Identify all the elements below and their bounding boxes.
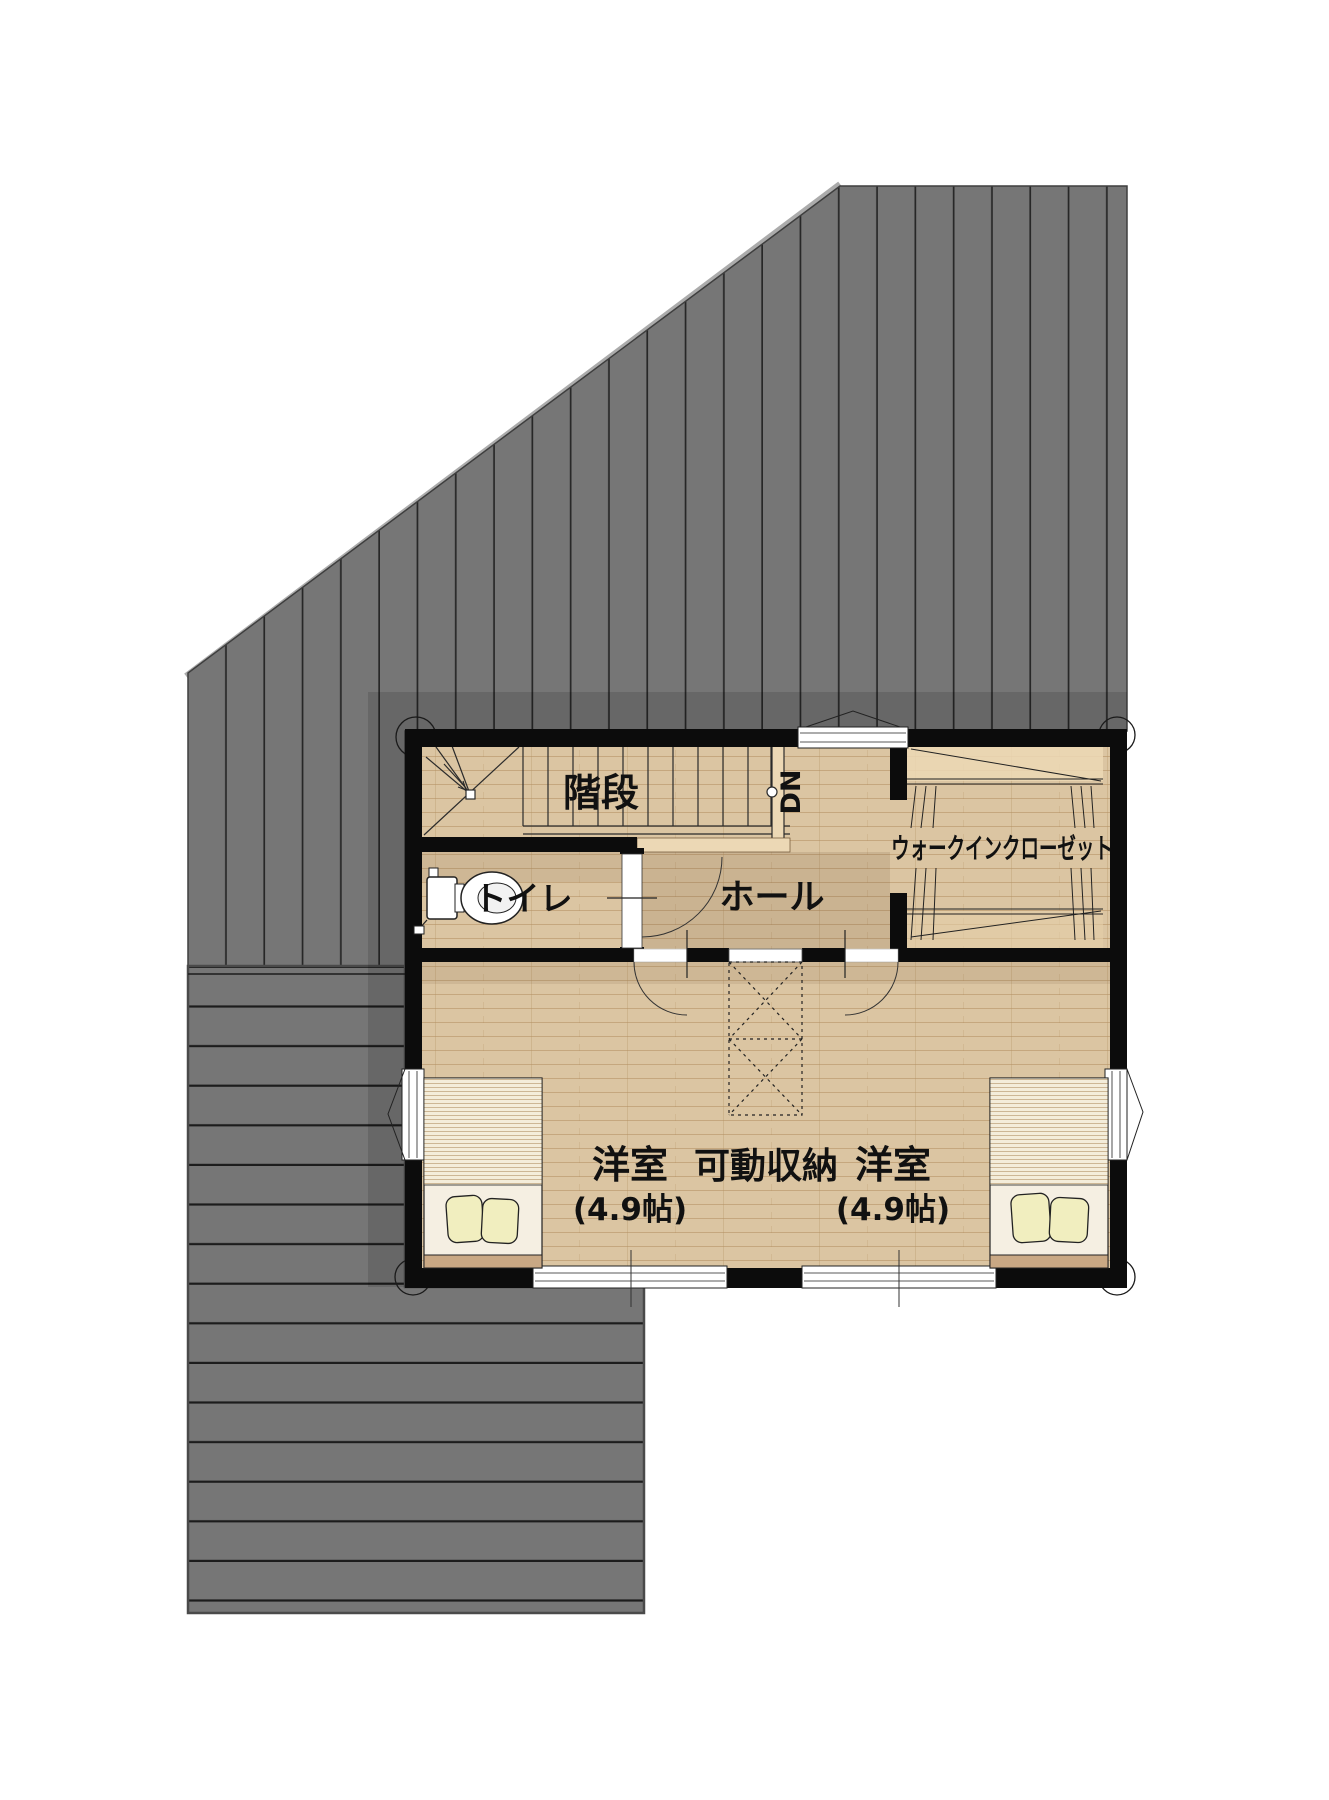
wall-middle-center2	[802, 948, 845, 962]
wall-bottom-right	[996, 1268, 1127, 1288]
wall-middle-right	[898, 948, 1110, 962]
bed-left-headboard	[424, 1255, 542, 1268]
bed-right-headboard	[990, 1255, 1108, 1268]
storage-opening	[729, 949, 802, 962]
label-walk-in-closet: ウォークインクローゼット	[891, 832, 1113, 865]
wall-left-upper	[405, 729, 422, 1069]
bed-right-pillow1	[1010, 1193, 1051, 1244]
wall-stair-toilet	[405, 837, 637, 852]
bed-right-duvet	[990, 1078, 1108, 1185]
bedroom-top-shade	[422, 962, 1110, 984]
wall-top-left-segment	[405, 729, 798, 747]
window-left	[402, 1069, 424, 1160]
bed-left-duvet	[424, 1078, 542, 1185]
toilet-door	[622, 854, 642, 948]
wall-toilet-jamb-top	[620, 848, 644, 854]
window-bottom-left	[533, 1266, 727, 1288]
toilet-valve	[414, 926, 424, 934]
label-down: DN	[776, 769, 807, 814]
label-hall: ホール	[719, 878, 824, 918]
bedroom-right-door-opening	[845, 949, 898, 962]
wall-top-right-segment	[908, 729, 1127, 747]
window-top	[798, 727, 908, 748]
wall-right-upper	[1110, 729, 1127, 1069]
bed-right	[990, 1078, 1108, 1268]
toilet-tank	[427, 877, 457, 919]
label-bedroom-left: 洋室	[592, 1143, 668, 1187]
label-bedroom-right: 洋室	[855, 1143, 931, 1187]
wall-bottom-left	[405, 1268, 533, 1288]
wall-bottom-center	[727, 1268, 802, 1288]
label-stairs: 階段	[563, 771, 639, 815]
label-toilet: トイレ	[474, 879, 573, 918]
stair-step-band	[637, 838, 790, 852]
bed-left-pillow2	[481, 1198, 519, 1244]
floor-plan-drawing: 階段 DN ウォークインクローゼット トイレ ホール 洋室 (4.9帖) 洋室 …	[0, 0, 1329, 1800]
label-movable-storage: 可動収納	[694, 1146, 838, 1187]
bed-left-pillow1	[445, 1195, 484, 1243]
bed-right-pillow2	[1049, 1197, 1089, 1243]
wall-middle-left	[405, 948, 634, 962]
label-bedroom-left-size: (4.9帖)	[573, 1192, 687, 1228]
wall-middle-center1	[687, 948, 729, 962]
label-bedroom-right-size: (4.9帖)	[836, 1192, 950, 1228]
stair-newel-post	[466, 790, 475, 799]
floor-plan-page: 階段 DN ウォークインクローゼット トイレ ホール 洋室 (4.9帖) 洋室 …	[0, 0, 1329, 1800]
bed-left	[424, 1078, 542, 1268]
bedroom-left-door-opening	[634, 949, 687, 962]
